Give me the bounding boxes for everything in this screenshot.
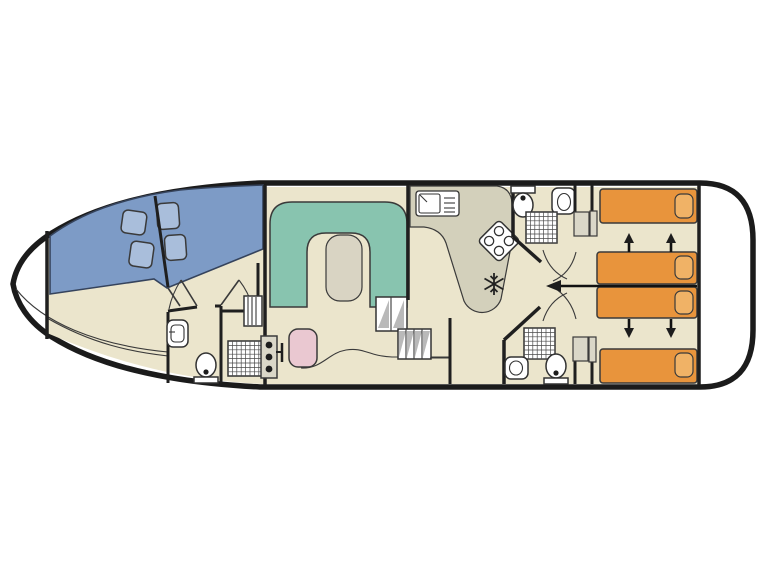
toilet-base: [194, 377, 218, 383]
helm-seat: [289, 329, 317, 367]
pillow: [164, 234, 187, 260]
stairs-upper-icon: [376, 297, 407, 331]
pillow: [675, 256, 693, 279]
shower-icon: [228, 341, 262, 376]
pillow: [675, 353, 693, 377]
throttle-knob: [266, 342, 273, 349]
wardrobe: [573, 337, 588, 361]
toilet-detail: [203, 369, 208, 374]
pillow: [120, 209, 147, 235]
pillow: [675, 194, 693, 218]
sink-basin: [171, 325, 184, 342]
shower-icon: [524, 328, 555, 359]
galley-sink-icon: [416, 191, 459, 216]
wardrobe: [590, 211, 597, 236]
boat-floorplan: [0, 0, 768, 576]
stairs-lower-icon: [398, 329, 431, 359]
boat-floorplan-canvas: [0, 0, 768, 576]
toilet-base: [544, 378, 568, 384]
toilet-detail: [520, 195, 525, 200]
pillow: [675, 291, 693, 314]
sink-bowl: [510, 361, 523, 375]
toilet-cistern: [511, 186, 535, 193]
pillow: [128, 241, 154, 269]
dinette-table: [326, 235, 362, 301]
wardrobe: [574, 212, 589, 236]
throttle-knob: [266, 354, 273, 361]
shower-icon: [526, 212, 557, 243]
toilet-detail: [553, 370, 558, 375]
wardrobe: [589, 337, 596, 362]
side-steps-icon: [244, 296, 262, 326]
throttle-knob: [266, 366, 273, 373]
saloon: [270, 202, 407, 307]
sink-bowl: [558, 194, 571, 211]
